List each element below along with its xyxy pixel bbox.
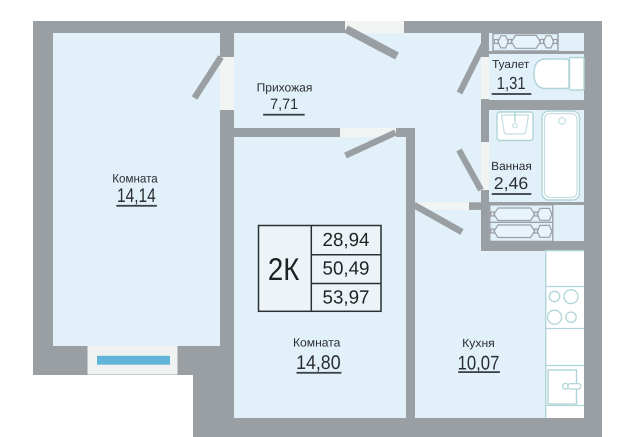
- svg-text:53,97: 53,97: [323, 287, 370, 308]
- svg-text:7,71: 7,71: [270, 96, 298, 113]
- svg-text:14,80: 14,80: [296, 352, 341, 374]
- svg-text:2К: 2К: [268, 251, 300, 287]
- svg-text:50,49: 50,49: [323, 259, 370, 280]
- svg-text:Комната: Комната: [112, 172, 158, 186]
- svg-text:Комната: Комната: [293, 336, 341, 350]
- svg-text:28,94: 28,94: [323, 230, 370, 251]
- svg-text:Туалет: Туалет: [492, 59, 530, 71]
- svg-text:Прихожая: Прихожая: [257, 80, 313, 94]
- svg-text:Ванная: Ванная: [491, 159, 532, 173]
- svg-text:Кухня: Кухня: [462, 336, 495, 350]
- svg-text:1,31: 1,31: [497, 73, 526, 93]
- svg-text:2,46: 2,46: [494, 174, 529, 193]
- svg-text:14,14: 14,14: [117, 185, 156, 207]
